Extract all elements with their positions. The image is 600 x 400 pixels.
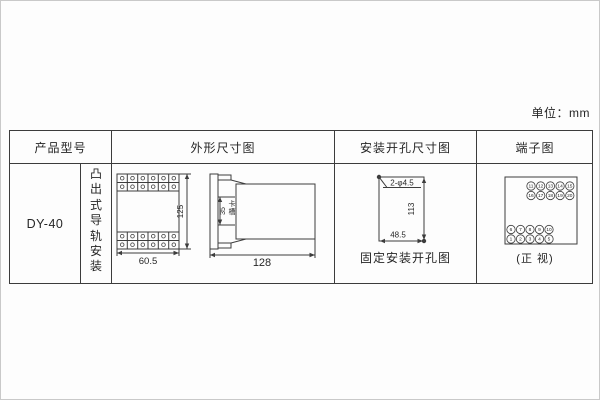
dim-depth-label: 128 xyxy=(253,257,271,269)
dim-height-label: 125 xyxy=(176,204,185,218)
mounting-diagram-cell: 2-φ4.5 113 48.5 固定安装开孔图 xyxy=(335,164,477,284)
svg-text:13: 13 xyxy=(548,184,554,190)
header-outline: 外形尺寸图 xyxy=(112,131,335,164)
outline-diagram: 60.5 125 xyxy=(112,164,335,284)
svg-text:19: 19 xyxy=(557,193,563,199)
svg-text:10: 10 xyxy=(546,227,552,233)
terminal-diagram-cell: 11 12 13 14 15 16 17 18 19 20 6 7 8 9 10 xyxy=(477,164,593,284)
svg-text:7: 7 xyxy=(519,227,522,233)
slot-label: 卡槽 xyxy=(228,201,236,217)
svg-text:18: 18 xyxy=(548,193,554,199)
product-model-cell: DY-40 xyxy=(10,164,81,284)
mounting-hole-diagram: 2-φ4.5 113 48.5 xyxy=(335,164,477,284)
outline-diagram-cell: 60.5 125 xyxy=(112,164,335,284)
svg-text:11: 11 xyxy=(529,184,534,190)
dim-width-label: 60.5 xyxy=(139,256,158,267)
svg-text:15: 15 xyxy=(567,184,573,190)
dim-vertical-label: 113 xyxy=(407,202,416,215)
terminal-diagram: 11 12 13 14 15 16 17 18 19 20 6 7 8 9 10 xyxy=(477,164,593,284)
outline-front-view xyxy=(117,174,179,249)
dim-depth: 128 xyxy=(210,240,315,270)
hole-callout: 2-φ4.5 xyxy=(379,177,421,188)
unit-label: 单位：mm xyxy=(532,104,591,121)
header-terminal: 端子图 xyxy=(477,131,593,164)
svg-text:20: 20 xyxy=(567,193,573,199)
header-mounting: 安装开孔尺寸图 xyxy=(335,131,477,164)
dim-horizontal-label: 48.5 xyxy=(390,231,406,240)
hole-callout-label: 2-φ4.5 xyxy=(390,179,414,188)
svg-text:8: 8 xyxy=(529,227,532,233)
header-product-model: 产品型号 xyxy=(10,131,112,164)
datasheet-page: 单位：mm 产品型号 外形尺寸图 安装开孔尺寸图 端子图 DY-40 凸出式导轨… xyxy=(0,0,600,400)
svg-text:16: 16 xyxy=(528,193,534,199)
mounting-diagram-caption: 固定安装开孔图 xyxy=(335,249,476,266)
svg-text:12: 12 xyxy=(538,184,544,190)
mounting-type-cell: 凸出式导轨安装 xyxy=(81,164,112,284)
dim-slot-label: 35 xyxy=(220,207,227,215)
svg-text:1: 1 xyxy=(510,237,513,243)
svg-text:14: 14 xyxy=(557,184,563,190)
svg-text:2: 2 xyxy=(519,237,522,243)
svg-text:6: 6 xyxy=(510,227,513,233)
dim-height: 125 xyxy=(176,174,191,249)
dim-width: 60.5 xyxy=(117,250,179,268)
spec-table: 产品型号 外形尺寸图 安装开孔尺寸图 端子图 DY-40 凸出式导轨安装 xyxy=(9,130,593,284)
mounting-type-label: 凸出式导轨安装 xyxy=(90,167,103,275)
svg-text:4: 4 xyxy=(538,237,541,243)
terminal-bottom-block: 6 7 8 9 10 1 2 3 4 5 xyxy=(507,225,553,243)
terminal-top-block: 11 12 13 14 15 16 17 18 19 20 xyxy=(527,182,574,200)
svg-text:3: 3 xyxy=(529,237,532,243)
dim-horizontal-distance: 48.5 xyxy=(380,231,423,242)
svg-text:5: 5 xyxy=(548,237,551,243)
terminal-diagram-caption: (正 视) xyxy=(477,250,593,266)
svg-text:9: 9 xyxy=(538,227,541,233)
svg-text:17: 17 xyxy=(538,193,544,199)
